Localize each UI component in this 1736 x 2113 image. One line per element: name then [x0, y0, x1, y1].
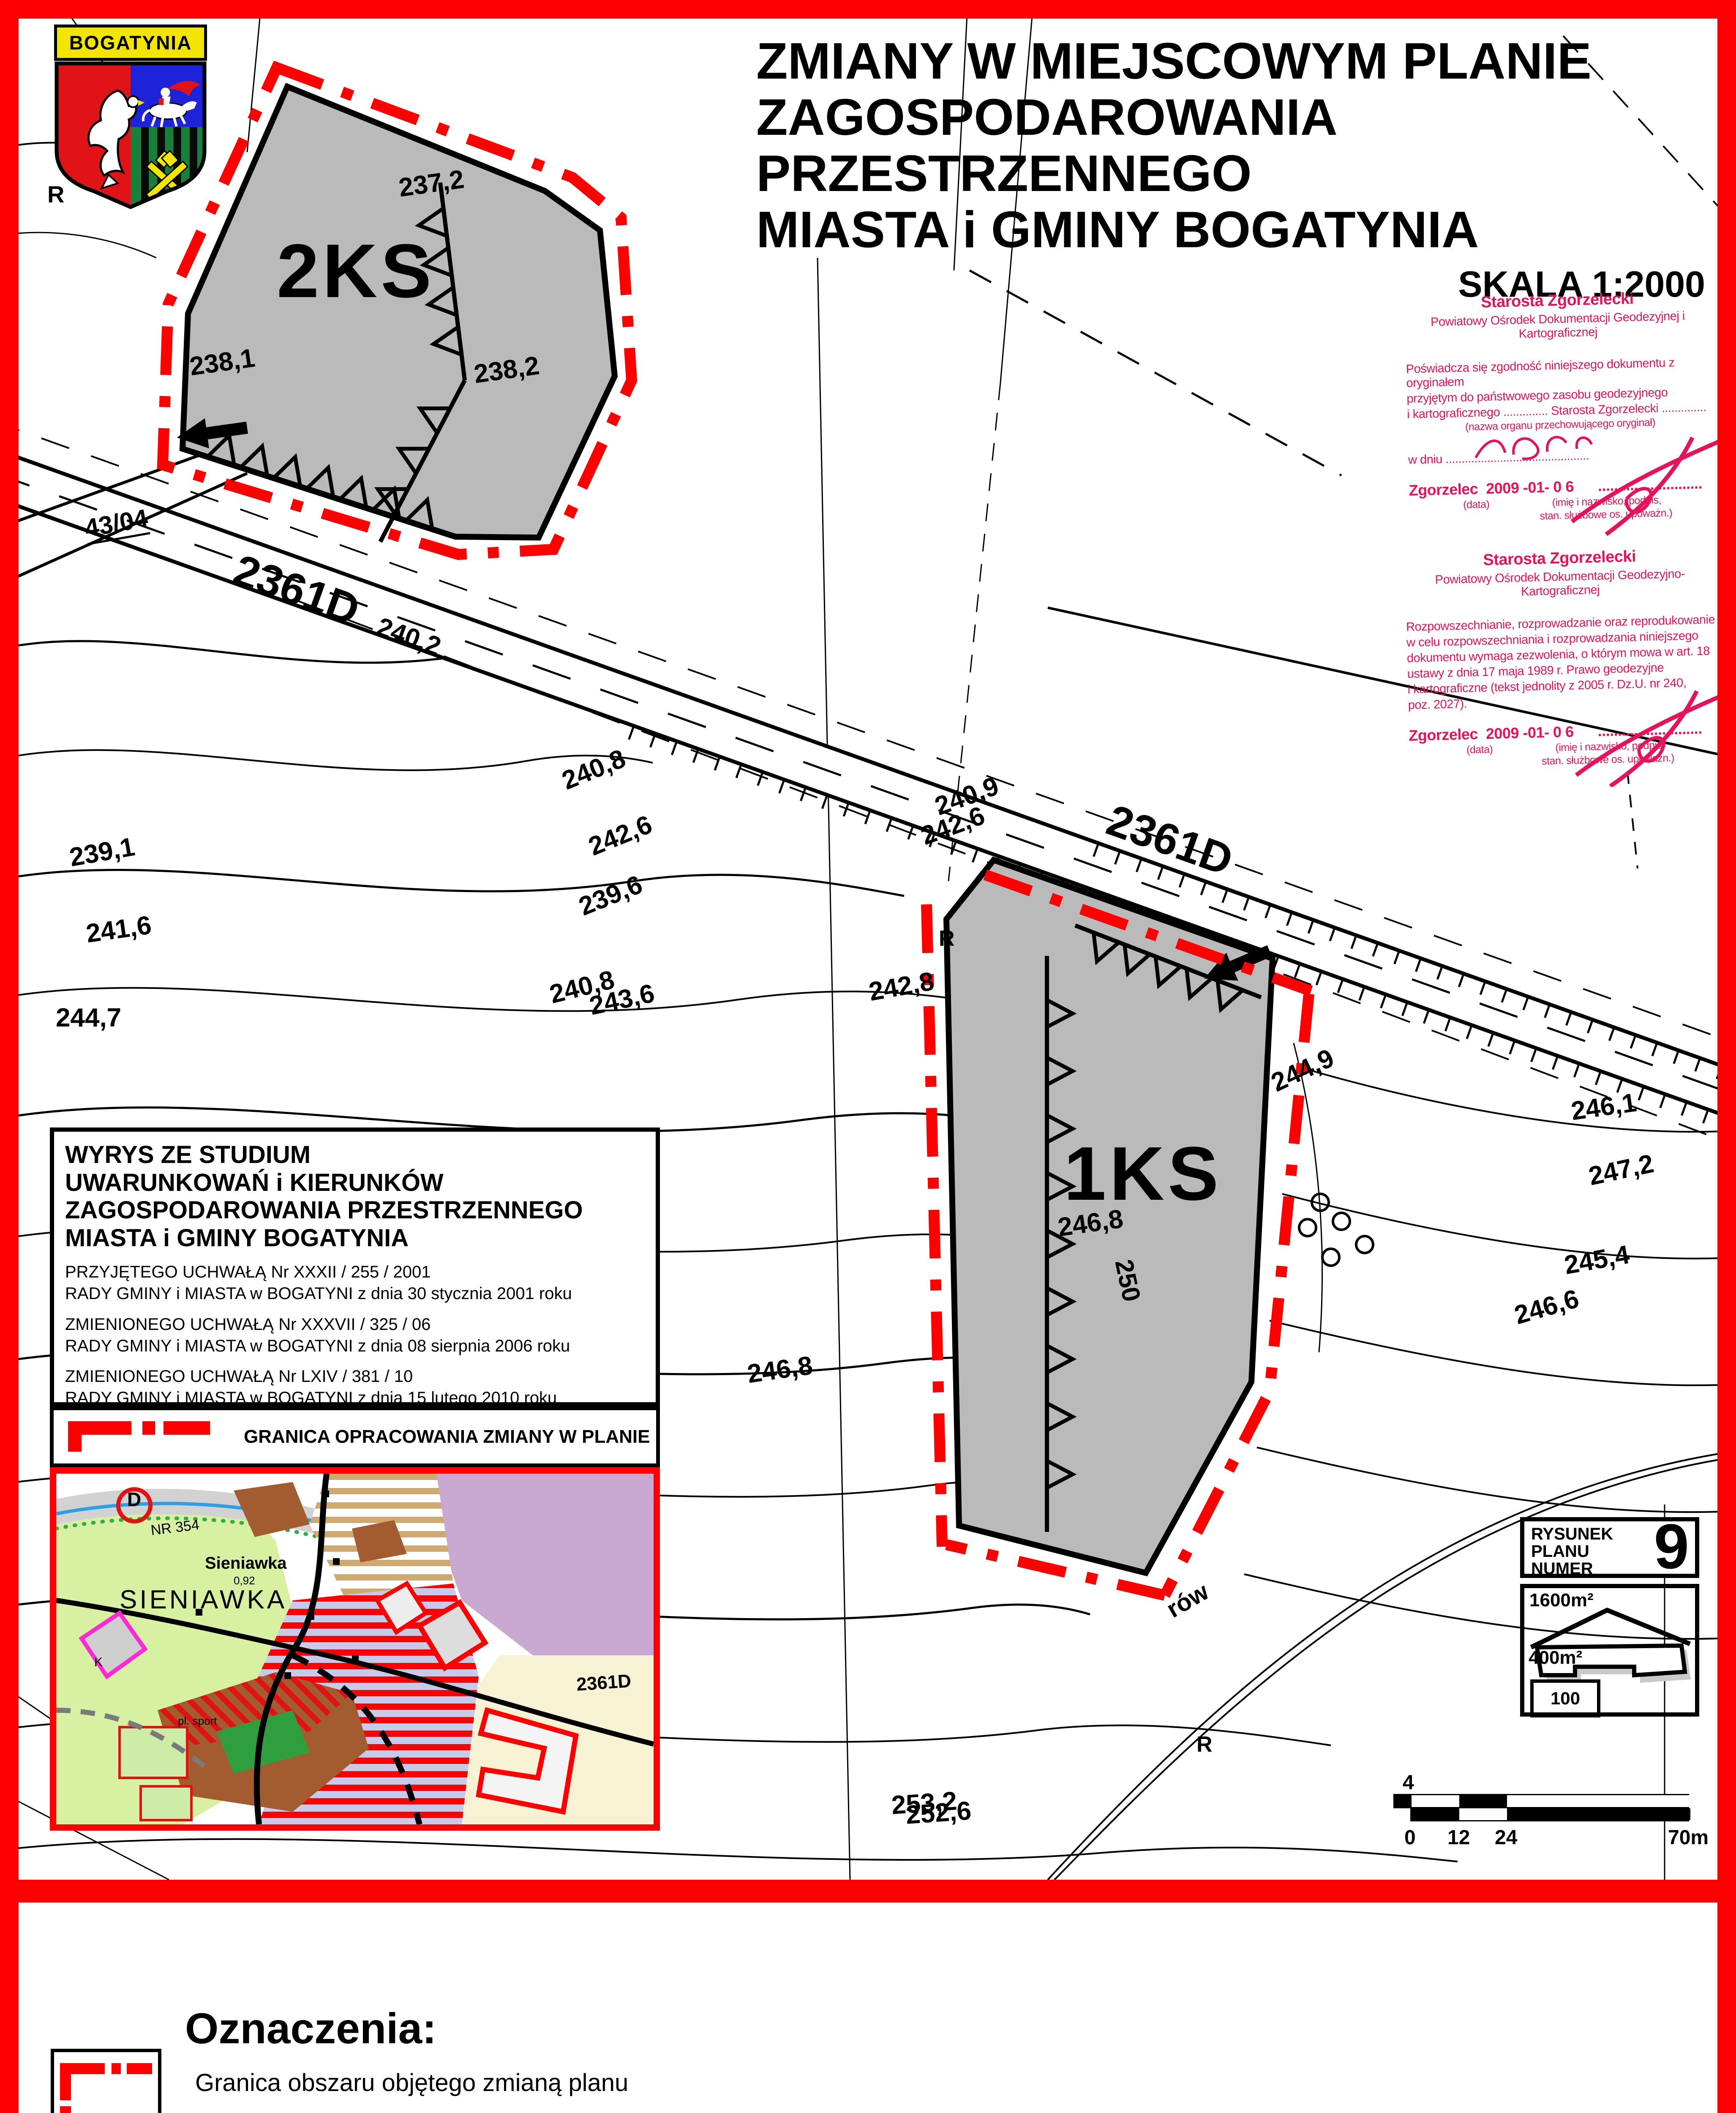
scale-tick-4: 4: [1403, 1771, 1414, 1794]
plan-number-box: RYSUNEK PLANU NUMER 9: [1520, 1517, 1699, 1578]
inset-annotation: 2361D: [576, 1672, 632, 1694]
study-title-line: UWARUNKOWAŃ i KIERUNKÓW: [65, 1169, 645, 1197]
scale-tick-0: 0: [1404, 1826, 1416, 1849]
scale-tick-24: 24: [1495, 1826, 1517, 1849]
study-inset-map: SIENIAWKASieniawka0,92NR 3542361Dpl. spo…: [50, 1467, 660, 1831]
legend-label: Granica obszaru objętego zmianą planu: [195, 2067, 628, 2099]
stamp-signature: [1562, 682, 1733, 788]
scale-tick-12: 12: [1447, 1826, 1470, 1849]
stamp-signature: [1557, 433, 1729, 539]
tree-symbols: [1299, 1194, 1373, 1266]
resolution-line: ZMIENIONEGO UCHWAŁĄ Nr XXXVII / 325 / 06: [65, 1314, 645, 1335]
stamp-line: Powiatowy Ośrodek Dokumentacji Geodezyjn…: [1405, 566, 1715, 602]
inset-labels: SIENIAWKASieniawka0,92NR 3542361Dpl. spo…: [56, 1474, 654, 1824]
study-title-line: MIASTA i GMINY BOGATYNIA: [65, 1224, 645, 1252]
inset-annotation: pl. sport: [178, 1715, 217, 1726]
title-line: MIASTA i GMINY BOGATYNIA: [756, 202, 1712, 258]
resolution-line: PRZYJĘTEGO UCHWAŁĄ Nr XXXII / 255 / 2001: [65, 1262, 645, 1283]
plot-area-100: 100: [1530, 1679, 1600, 1717]
study-title-line: ZAGOSPODAROWANIA PRZESTRZENNEGO: [65, 1196, 645, 1224]
legend-symbol-boundary: [51, 2049, 161, 2113]
study-extract-box: WYRYS ZE STUDIUM UWARUNKOWAŃ i KIERUNKÓW…: [50, 1127, 660, 1406]
road-2361d: [0, 420, 1736, 1147]
plan-caption-line: RYSUNEK: [1531, 1526, 1613, 1543]
coat-of-arms: BOGATYNIA: [54, 25, 207, 212]
inset-annotation: 0,92: [234, 1575, 255, 1586]
coat-shield: [54, 61, 207, 210]
plan-caption-line: PLANU: [1531, 1543, 1613, 1560]
plot-area-400: 400m²: [1529, 1647, 1582, 1668]
inset-annotation: NR 354: [150, 1518, 200, 1538]
stamp-certification: Starosta ZgorzeleckiPowiatowy Ośrodek Do…: [1404, 288, 1715, 526]
resolution-line: RADY GMINY i MIASTA w BOGATYNI z dnia 15…: [65, 1388, 645, 1409]
study-title-line: WYRYS ZE STUDIUM: [65, 1141, 645, 1169]
coat-banner: BOGATYNIA: [54, 25, 207, 61]
inset-annotation: K: [94, 1656, 103, 1669]
boundary-key-label: GRANICA OPRACOWANIA ZMIANY W PLANIE: [244, 1426, 650, 1447]
parcel-2ks: [183, 87, 615, 538]
resolution-line: RADY GMINY i MIASTA w BOGATYNI z dnia 30…: [65, 1283, 645, 1304]
frame-right: [1717, 0, 1736, 2113]
inset-annotation: D: [127, 1490, 141, 1509]
title-line: ZMIANY W MIEJSCOWYM PLANIE: [756, 33, 1712, 89]
plan-number-caption: RYSUNEK PLANU NUMER: [1524, 1521, 1613, 1574]
resolution-line: ZMIENIONEGO UCHWAŁĄ Nr LXIV / 381 / 10: [65, 1366, 645, 1387]
inset-annotation: SIENIAWKA: [120, 1587, 287, 1613]
resolution-line: RADY GMINY i MIASTA w BOGATYNI z dnia 08…: [65, 1336, 645, 1357]
frame-left: [0, 0, 19, 2113]
scale-tick-70m: 70m: [1668, 1826, 1709, 1849]
title-line: ZAGOSPODAROWANIA: [756, 89, 1712, 145]
frame-top: [0, 0, 1736, 19]
plot-area-1600: 1600m²: [1529, 1590, 1594, 1611]
plot-area-diagram: 1600m² 400m² 100: [1520, 1584, 1699, 1717]
plan-number: 9: [1613, 1521, 1695, 1574]
title-block: ZMIANY W MIEJSCOWYM PLANIE ZAGOSPODAROWA…: [756, 33, 1712, 306]
frame-divider: [0, 1880, 1736, 1903]
inset-annotation: Sieniawka: [205, 1555, 286, 1572]
stamp-line: Powiatowy Ośrodek Dokumentacji Geodezyjn…: [1405, 308, 1711, 344]
legend-heading: Oznaczenia:: [185, 2004, 436, 2053]
plan-caption-line: NUMER: [1531, 1560, 1613, 1578]
boundary-key-box: GRANICA OPRACOWANIA ZMIANY W PLANIE: [50, 1406, 660, 1467]
stamp-copyright: Starosta ZgorzeleckiPowiatowy Ośrodek Do…: [1404, 546, 1720, 771]
scale-bar: 4 0 12 24 70m: [1393, 1777, 1723, 1866]
plan-sheet: 2KS1KS2361D2361D240,243/04R237,2238,1238…: [0, 0, 1736, 2113]
stamp-line: Poświadcza się zgodność niniejszego doku…: [1406, 355, 1712, 390]
boundary-symbol: [68, 1414, 220, 1460]
title-line: PRZESTRZENNEGO: [756, 145, 1712, 202]
